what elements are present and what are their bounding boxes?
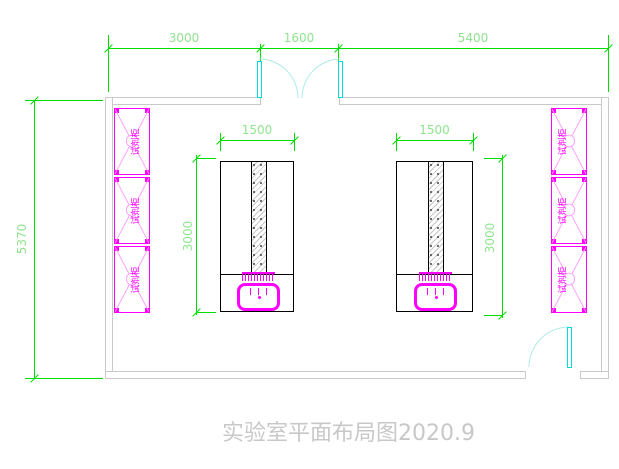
dimension-line (34, 100, 35, 378)
wall-left (105, 97, 113, 379)
door-leaf (257, 61, 262, 98)
cabinet-reagent: 试剂柜 (551, 177, 587, 244)
dimension-label-5400: 5400 (338, 32, 608, 44)
extension-line (484, 315, 502, 316)
cabinet-reagent: 试剂柜 (551, 246, 587, 313)
door-swing-arcs (0, 0, 619, 469)
sink-drainboard (419, 272, 452, 281)
dimension-line (396, 140, 473, 141)
sink-icon (237, 283, 280, 311)
door-leaf (338, 61, 343, 98)
extension-line (473, 133, 474, 151)
cabinet-label: 试剂柜 (132, 266, 141, 293)
dimension-line (502, 155, 503, 318)
extension-line (196, 158, 216, 159)
wall-right (601, 97, 609, 379)
dimension-label-1500: 1500 (220, 124, 294, 136)
extension-line (25, 378, 103, 379)
dimension-label-1600: 1600 (260, 32, 338, 44)
wall-bottom-right-segment (580, 371, 609, 379)
extension-line (608, 35, 609, 92)
sink-drainboard (242, 272, 275, 281)
cabinet-reagent: 试剂柜 (114, 246, 150, 313)
wall-top-right-segment (339, 97, 609, 105)
cad-floorplan-canvas: 3000 1600 5400 5370 试剂柜 试剂柜 试剂柜 试剂柜 试剂柜 … (0, 0, 619, 469)
dimension-label-3000: 3000 (108, 32, 260, 44)
drawing-title: 实验室平面布局图2020.9 (222, 421, 482, 447)
cabinet-label: 试剂柜 (559, 266, 568, 293)
door-leaf (567, 327, 572, 368)
cabinet-reagent: 试剂柜 (551, 108, 587, 175)
cabinet-label: 试剂柜 (559, 197, 568, 224)
bench-hatch-strip (251, 162, 267, 274)
cabinet-label: 试剂柜 (132, 197, 141, 224)
dimension-label-3000: 3000 (484, 216, 496, 260)
extension-line (25, 100, 103, 101)
dimension-label-3000: 3000 (182, 214, 194, 258)
cabinet-reagent: 试剂柜 (114, 177, 150, 244)
cabinet-reagent: 试剂柜 (114, 108, 150, 175)
cabinet-label: 试剂柜 (132, 128, 141, 155)
dimension-line (220, 140, 294, 141)
sink-icon (414, 283, 457, 311)
wall-top-left-segment (105, 97, 261, 105)
extension-line (294, 133, 295, 151)
dimension-line (108, 48, 608, 49)
dimension-label-5370: 5370 (16, 217, 28, 261)
extension-line (196, 312, 216, 313)
dimension-line (196, 155, 197, 315)
bench-hatch-strip (428, 162, 444, 274)
wall-bottom-left-segment (105, 371, 526, 379)
dimension-label-1500: 1500 (396, 124, 473, 136)
extension-line (484, 158, 502, 159)
cabinet-label: 试剂柜 (559, 128, 568, 155)
